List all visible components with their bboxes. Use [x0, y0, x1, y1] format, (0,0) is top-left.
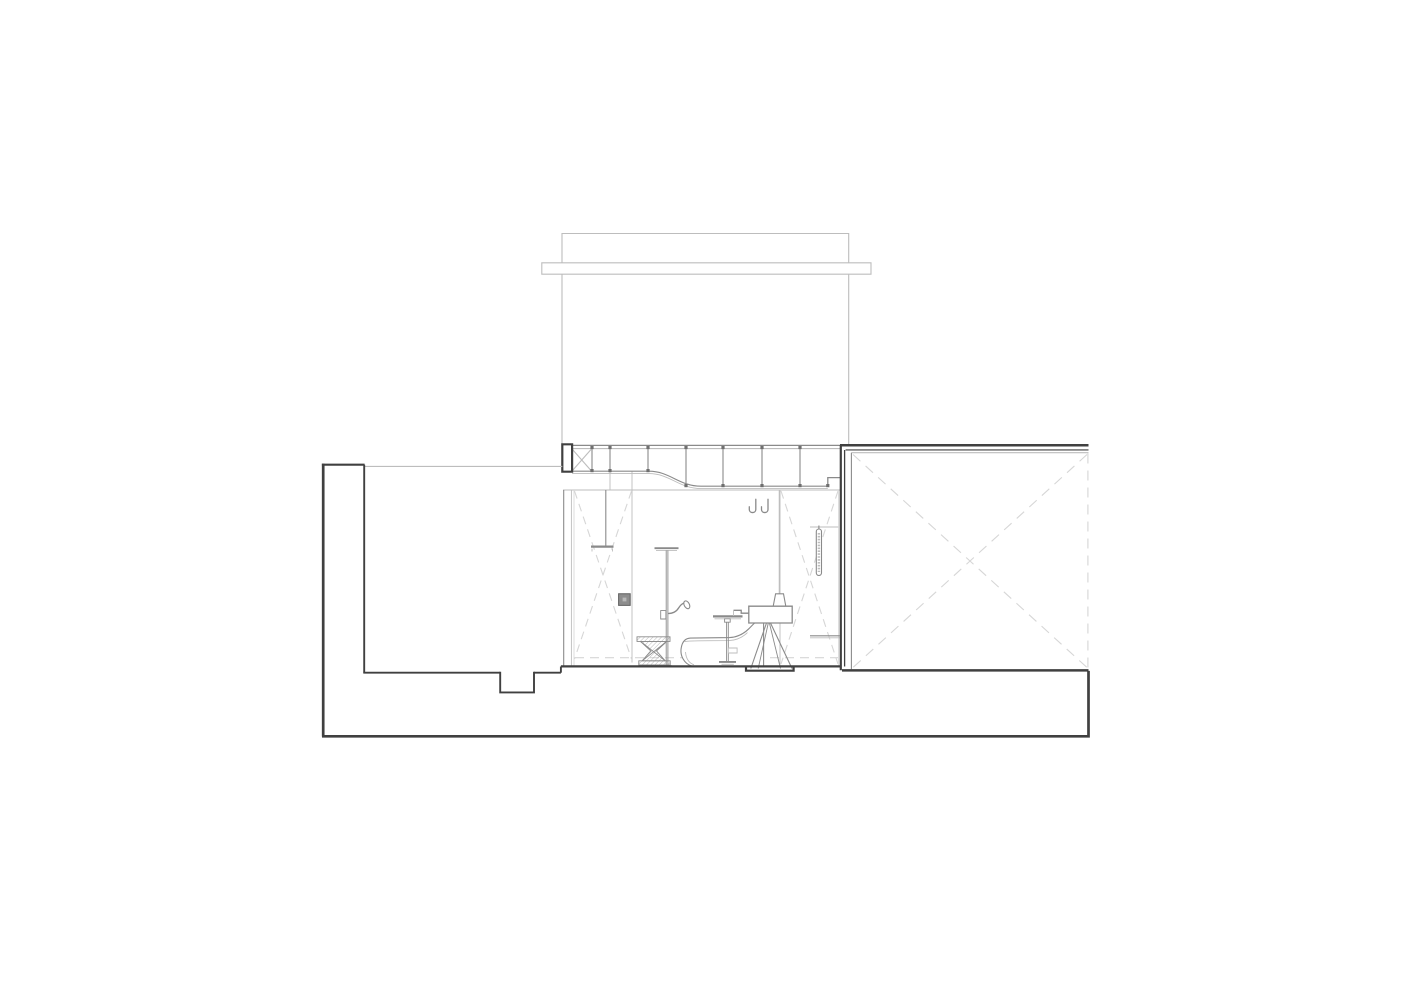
roof-truss — [562, 444, 841, 490]
fixtures — [591, 490, 840, 669]
washstand-tap — [734, 610, 749, 613]
control-panel — [619, 594, 631, 606]
shower-spout — [668, 603, 685, 614]
ceiling-shower — [591, 490, 614, 552]
table-knob — [728, 648, 737, 653]
upper-volume — [542, 234, 871, 446]
wall-shelf — [810, 636, 840, 638]
pendant-lamp — [773, 490, 786, 606]
truss-posts — [592, 449, 800, 487]
truss-nodes — [590, 446, 829, 487]
underside-notch — [500, 672, 534, 693]
section-drawing — [0, 0, 1414, 1000]
truss-column — [562, 444, 572, 471]
right-box — [840, 445, 1089, 670]
robe-hooks — [749, 499, 768, 512]
room-shell — [563, 471, 840, 666]
left-wing — [322, 464, 562, 737]
stool — [637, 637, 670, 665]
room-right-wall — [841, 445, 845, 670]
room-floor — [561, 666, 841, 670]
chaise — [681, 619, 764, 666]
roof-band — [542, 263, 871, 274]
base-plinth — [322, 671, 1089, 736]
drawing-canvas — [0, 0, 1414, 1000]
washstand-basin — [749, 606, 792, 623]
